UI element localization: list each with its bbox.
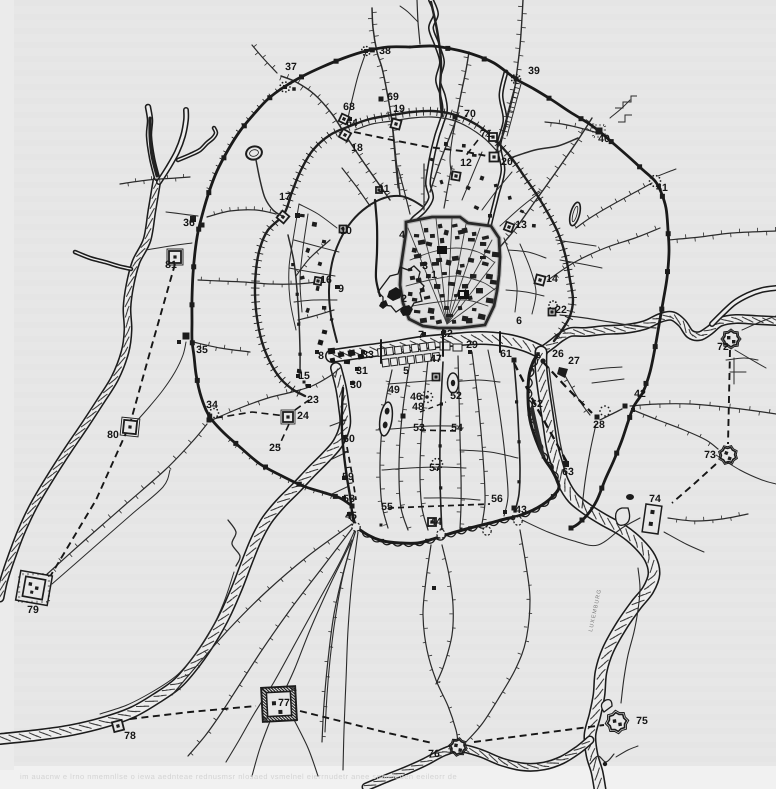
svg-text:71: 71 [480, 128, 492, 140]
svg-text:73: 73 [704, 449, 716, 461]
svg-text:34: 34 [206, 399, 218, 411]
svg-text:49: 49 [388, 384, 400, 396]
svg-text:31: 31 [356, 365, 368, 377]
svg-text:15: 15 [298, 370, 310, 382]
svg-text:19: 19 [393, 103, 405, 115]
svg-text:75: 75 [636, 715, 648, 727]
svg-text:79: 79 [27, 604, 39, 616]
svg-text:10: 10 [340, 225, 352, 237]
svg-text:42: 42 [634, 388, 646, 400]
svg-text:62: 62 [531, 398, 543, 410]
svg-text:30: 30 [350, 379, 362, 391]
svg-text:43: 43 [515, 504, 527, 516]
svg-text:68: 68 [343, 101, 355, 113]
svg-text:28: 28 [593, 419, 605, 431]
svg-text:35: 35 [196, 344, 208, 356]
svg-text:48: 48 [412, 401, 424, 413]
svg-text:7: 7 [418, 329, 424, 341]
svg-text:32: 32 [441, 328, 453, 340]
svg-text:58: 58 [343, 493, 355, 505]
svg-text:2: 2 [401, 293, 407, 305]
svg-text:33: 33 [362, 349, 374, 361]
svg-text:29: 29 [466, 339, 478, 351]
svg-text:13: 13 [515, 219, 527, 231]
svg-text:59: 59 [342, 471, 354, 483]
svg-text:61: 61 [500, 348, 512, 360]
svg-text:37: 37 [285, 61, 297, 73]
svg-text:17: 17 [279, 191, 291, 203]
svg-text:81: 81 [165, 259, 177, 271]
svg-text:5: 5 [403, 365, 409, 377]
svg-text:14: 14 [546, 273, 558, 285]
svg-text:16: 16 [320, 274, 332, 286]
svg-text:8: 8 [318, 350, 324, 362]
svg-text:76: 76 [428, 748, 440, 760]
svg-text:54: 54 [451, 422, 463, 434]
svg-text:23: 23 [307, 394, 319, 406]
svg-text:38: 38 [379, 45, 391, 57]
svg-text:20: 20 [501, 156, 513, 168]
svg-text:57: 57 [429, 462, 441, 474]
svg-text:74: 74 [649, 493, 661, 505]
svg-text:25: 25 [269, 442, 281, 454]
svg-text:60: 60 [343, 433, 355, 445]
svg-text:55: 55 [381, 501, 393, 513]
svg-text:40: 40 [598, 133, 610, 145]
svg-text:64: 64 [346, 117, 358, 129]
svg-text:80: 80 [107, 429, 119, 441]
svg-text:22: 22 [555, 304, 567, 316]
svg-text:56: 56 [491, 493, 503, 505]
svg-text:72: 72 [717, 341, 729, 353]
svg-text:44: 44 [430, 516, 442, 528]
svg-text:36: 36 [183, 217, 195, 229]
svg-text:18: 18 [351, 142, 363, 154]
svg-text:12: 12 [460, 157, 472, 169]
svg-text:41: 41 [656, 182, 668, 194]
svg-text:63: 63 [562, 466, 574, 478]
svg-text:27: 27 [568, 355, 580, 367]
svg-text:3: 3 [422, 260, 428, 272]
svg-text:77: 77 [278, 697, 290, 709]
svg-text:45: 45 [345, 510, 357, 522]
svg-text:im auacnw e lrno nmemnllse o i: im auacnw e lrno nmemnllse o iewa aednte… [20, 772, 457, 781]
svg-text:52: 52 [450, 390, 462, 402]
svg-text:53: 53 [413, 422, 425, 434]
svg-text:78: 78 [124, 730, 136, 742]
svg-text:1: 1 [431, 269, 437, 281]
svg-text:24: 24 [297, 410, 309, 422]
svg-text:4: 4 [399, 229, 405, 241]
svg-text:39: 39 [528, 65, 540, 77]
svg-text:11: 11 [378, 183, 389, 195]
svg-text:6: 6 [516, 315, 522, 327]
svg-text:69: 69 [387, 91, 399, 103]
svg-text:26: 26 [552, 348, 564, 360]
svg-text:70: 70 [464, 108, 476, 120]
svg-text:47: 47 [430, 353, 442, 365]
svg-text:9: 9 [338, 283, 344, 295]
